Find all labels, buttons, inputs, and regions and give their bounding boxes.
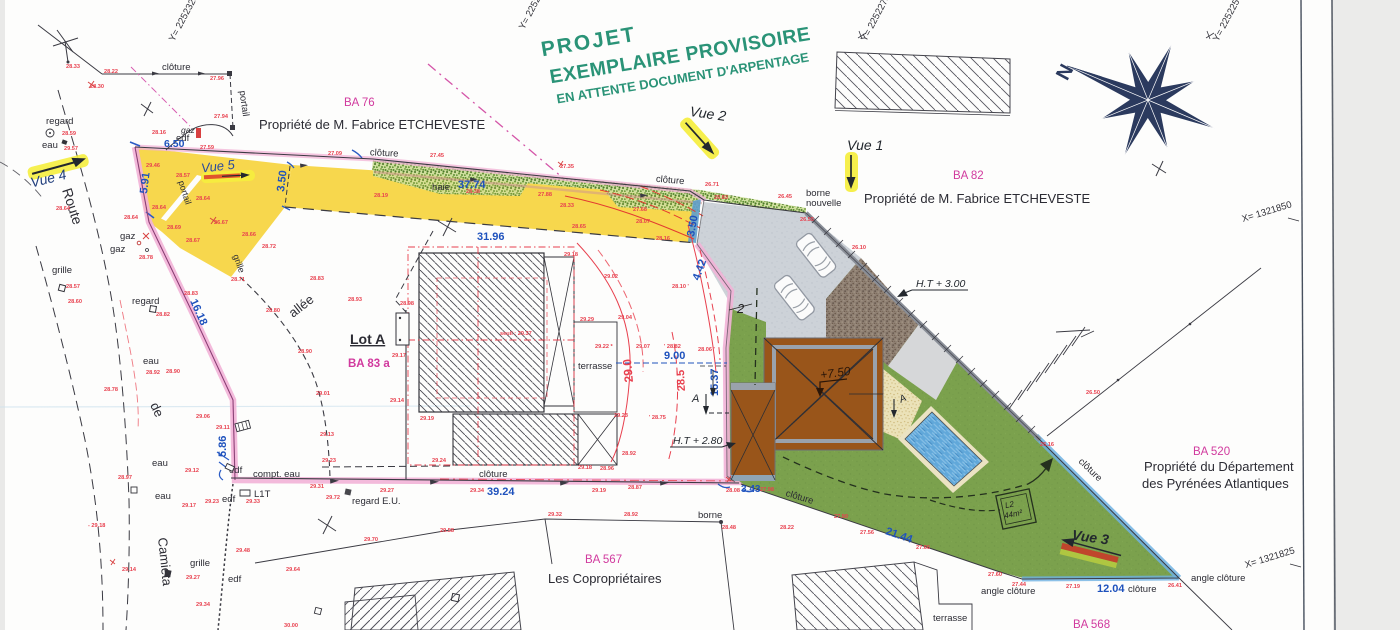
svg-text:29.72: 29.72 [326,495,340,501]
svg-text:grille: grille [52,265,72,276]
svg-text:eau: eau [152,458,168,469]
svg-text:Propriété de M. Fabrice ETCHEV: Propriété de M. Fabrice ETCHEVESTE [259,117,485,132]
svg-text:30.00: 30.00 [284,623,298,629]
svg-text:27.60: 27.60 [988,572,1002,578]
svg-text:28.92: 28.92 [622,451,636,457]
svg-text:27.88: 27.88 [538,192,552,198]
svg-text:29.19: 29.19 [592,488,606,494]
svg-text:Lot A: Lot A [350,331,385,347]
svg-text:29.17: 29.17 [392,353,406,359]
svg-text:angle clôture: angle clôture [1191,573,1245,584]
svg-text:26.10: 26.10 [852,245,866,251]
svg-text:terrasse: terrasse [578,361,612,372]
svg-text:29.32: 29.32 [548,512,562,518]
svg-text:15.37: 15.37 [709,368,721,396]
svg-text:nouvelle: nouvelle [806,198,841,209]
svg-text:27.19: 27.19 [1066,584,1080,590]
svg-text:27.44: 27.44 [1012,582,1027,588]
svg-text:29.02: 29.02 [604,274,618,280]
svg-text:26.50: 26.50 [1086,390,1100,396]
svg-text:28.22: 28.22 [780,525,794,531]
svg-text:31.96: 31.96 [477,231,505,243]
svg-text:eau: eau [155,491,171,502]
svg-text:28.83: 28.83 [184,291,198,297]
svg-text:28.64: 28.64 [152,205,167,211]
svg-text:26.41: 26.41 [1168,583,1182,589]
svg-text:edf: edf [228,574,242,585]
svg-text:Vue 1: Vue 1 [847,137,883,153]
svg-text:29.57: 29.57 [64,146,78,152]
svg-text:28.90: 28.90 [298,349,312,355]
svg-text:28.67: 28.67 [186,238,200,244]
svg-text:angle clôture: angle clôture [981,586,1035,597]
svg-text:28.33: 28.33 [66,64,80,70]
svg-text:clôture: clôture [479,469,508,480]
svg-text:29.18: 29.18 [578,465,592,471]
svg-text:edf: edf [222,494,236,505]
svg-text:borne: borne [698,510,722,521]
svg-text:29.23: 29.23 [205,499,219,505]
svg-text:28.78: 28.78 [139,255,153,261]
svg-text:28.10 ': 28.10 ' [672,284,690,290]
svg-text:27.66: 27.66 [916,545,930,551]
svg-text:28.57: 28.57 [66,284,80,290]
svg-text:29.34: 29.34 [470,488,485,494]
svg-text:28.07: 28.07 [636,219,650,225]
svg-text:28.48: 28.48 [722,525,736,531]
svg-text:29.0: 29.0 [620,358,636,383]
svg-text:H.T + 2.80: H.T + 2.80 [673,435,722,447]
svg-text:29.14: 29.14 [122,567,137,573]
svg-text:12.04: 12.04 [1097,583,1125,595]
svg-text:29.01: 29.01 [316,391,330,397]
svg-text:29.48: 29.48 [236,548,250,554]
svg-text:27.90: 27.90 [834,514,848,520]
svg-text:Propriété du Département: Propriété du Département [1144,459,1294,474]
svg-text:grille: grille [190,558,210,569]
svg-text:BA 82: BA 82 [953,170,984,182]
svg-text:eau: eau [42,140,58,151]
svg-text:BA 568: BA 568 [1073,619,1110,630]
svg-text:28.16: 28.16 [152,130,166,136]
svg-text:28.90: 28.90 [166,369,180,375]
svg-text:eau: eau [143,356,159,367]
svg-text:26.67: 26.67 [214,220,228,226]
svg-text:29.12: 29.12 [185,468,199,474]
svg-text:29.07: 29.07 [636,344,650,350]
svg-text:2: 2 [736,301,745,316]
svg-text:haie: haie [432,182,450,193]
svg-text:28.22: 28.22 [104,69,118,75]
svg-text:A: A [691,393,699,405]
svg-text:clôture: clôture [370,147,399,159]
svg-text:28.92: 28.92 [624,512,638,518]
svg-text:26.71: 26.71 [705,182,719,188]
svg-text:28.5: 28.5 [675,369,688,391]
svg-text:27.59: 27.59 [200,145,214,151]
svg-text:29.23: 29.23 [322,458,336,464]
svg-text:28.19: 28.19 [374,193,388,199]
svg-text:29.64: 29.64 [286,567,301,573]
svg-text:regard E.U.: regard E.U. [352,496,401,507]
svg-text:' 28.82: ' 28.82 [664,344,681,350]
svg-text:compt. eau: compt. eau [253,469,300,480]
svg-text:regard: regard [46,116,73,127]
svg-text:26.83: 26.83 [714,195,728,201]
svg-text:BA 83 a: BA 83 a [348,358,390,370]
svg-text:29.13: 29.13 [320,432,334,438]
svg-text:9.00: 9.00 [664,350,685,362]
svg-text:28.16: 28.16 [656,236,670,242]
svg-text:des Pyrénées Atlantiques: des Pyrénées Atlantiques [1142,476,1289,491]
svg-text:Les Copropriétaires: Les Copropriétaires [548,571,662,586]
svg-text:28.59: 28.59 [62,131,76,137]
svg-text:29.18: 29.18 [564,252,578,258]
svg-text:29.27: 29.27 [186,575,200,581]
svg-text:28.78: 28.78 [104,387,118,393]
svg-text:29.11: 29.11 [216,425,230,431]
svg-text:27.09: 27.09 [328,151,342,157]
svg-text:28.82: 28.82 [156,312,170,318]
svg-text:28.69: 28.69 [167,225,181,231]
svg-text:BA 76: BA 76 [344,97,375,109]
svg-text:28.06 ': 28.06 ' [698,347,716,353]
svg-text:28.08: 28.08 [726,488,740,494]
svg-text:39.24: 39.24 [487,486,515,498]
svg-text:29.29: 29.29 [580,317,594,323]
svg-text:28.64: 28.64 [196,196,211,202]
svg-text:seuil : 29.37: seuil : 29.37 [500,331,532,337]
svg-text:28.98: 28.98 [400,301,414,307]
svg-text:28.83: 28.83 [310,276,324,282]
svg-text:28.65: 28.65 [572,224,586,230]
svg-text:29.46: 29.46 [146,163,160,169]
svg-text:27.56: 27.56 [860,530,874,536]
svg-text:clôture: clôture [1128,584,1157,595]
svg-text:28.57: 28.57 [176,173,190,179]
svg-text:regard: regard [132,296,159,307]
svg-text:28.64: 28.64 [124,215,139,221]
svg-text:' 28.75: ' 28.75 [649,415,666,421]
svg-text:3.43: 3.43 [741,484,761,495]
svg-text:28.71: 28.71 [231,277,245,283]
svg-text:terrasse: terrasse [933,613,967,624]
svg-text:29.27: 29.27 [380,488,394,494]
svg-text:H.T + 3.00: H.T + 3.00 [916,278,965,290]
svg-text:BA 520: BA 520 [1193,446,1230,458]
svg-text:gaz: gaz [181,125,195,135]
svg-text:29.58: 29.58 [440,528,454,534]
svg-text:29.22 *: 29.22 * [595,344,614,350]
svg-text:29.17: 29.17 [182,503,196,509]
svg-text:26.16: 26.16 [1040,442,1054,448]
svg-text:28.96: 28.96 [600,466,614,472]
svg-text:29.34: 29.34 [196,602,211,608]
svg-text:27.68: 27.68 [633,207,647,213]
svg-text:gaz: gaz [120,231,136,242]
svg-text:6.50: 6.50 [164,138,185,150]
svg-text:27.98: 27.98 [760,487,774,493]
svg-text:28.80: 28.80 [266,308,280,314]
svg-text:28.87: 28.87 [628,485,642,491]
svg-text:27.96: 27.96 [210,76,224,82]
svg-text:28.92: 28.92 [146,370,160,376]
svg-text:29.24: 29.24 [432,458,447,464]
svg-text:29.31: 29.31 [310,484,324,490]
svg-text:27.94: 27.94 [214,114,229,120]
svg-text:28.38: 28.38 [466,189,480,195]
svg-text:28.93: 28.93 [348,297,362,303]
svg-text:clôture: clôture [162,62,191,73]
svg-text:- 29.18: - 29.18 [88,523,105,529]
svg-text:26.55: 26.55 [800,217,814,223]
svg-text:Propriété de M. Fabrice ETCHEV: Propriété de M. Fabrice ETCHEVESTE [864,191,1090,206]
svg-text:27.45: 27.45 [430,153,444,159]
svg-text:gaz: gaz [110,244,126,255]
svg-text:28.97: 28.97 [118,475,132,481]
svg-text:29.23: 29.23 [614,413,628,419]
svg-text:29.14: 29.14 [390,398,405,404]
svg-text:28.66: 28.66 [242,232,256,238]
svg-text:29.33: 29.33 [246,499,260,505]
svg-text:28.33: 28.33 [560,203,574,209]
svg-text:26.45: 26.45 [778,194,792,200]
svg-text:28.72: 28.72 [262,244,276,250]
svg-text:29.70: 29.70 [364,537,378,543]
svg-text:29.19: 29.19 [420,416,434,422]
svg-text:28.60: 28.60 [68,299,82,305]
svg-text:5.86: 5.86 [217,436,229,457]
svg-text:29.06: 29.06 [196,414,210,420]
svg-text:28.64: 28.64 [56,206,71,212]
svg-text:29.04: 29.04 [618,315,633,321]
svg-text:BA 567: BA 567 [585,554,622,566]
